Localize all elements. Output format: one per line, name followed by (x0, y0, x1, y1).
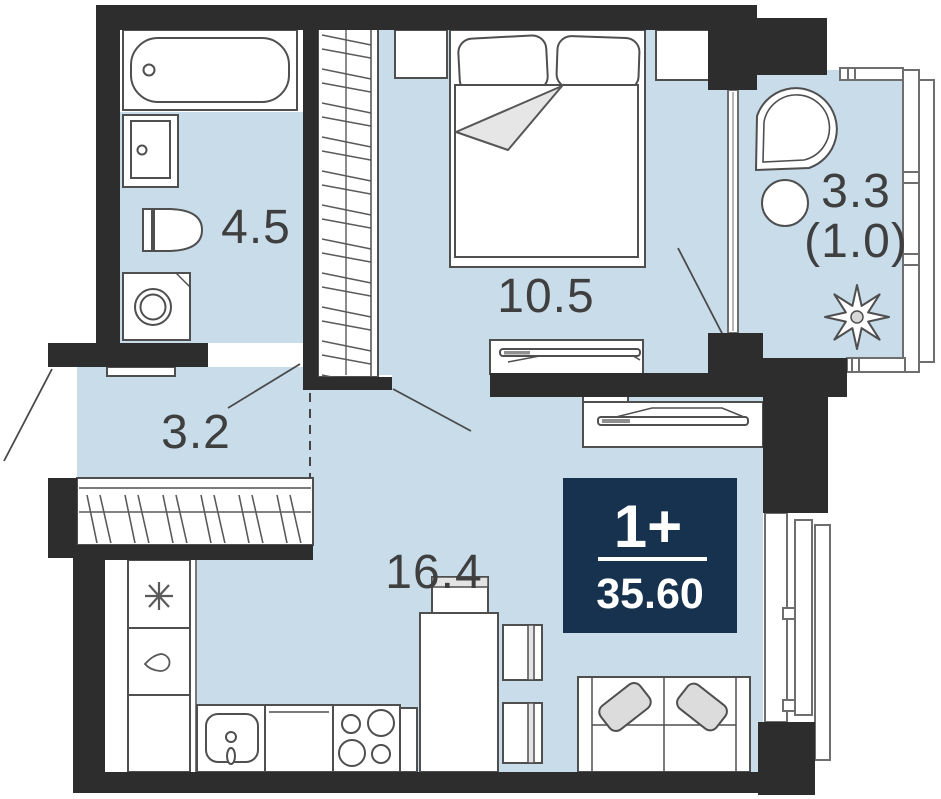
wardrobe-hallway (77, 478, 313, 545)
dining-table (420, 613, 498, 772)
balcony-outer-frame (919, 80, 934, 362)
kitchen-counter (265, 705, 333, 772)
balcony-area-label: 3.3 (821, 165, 891, 218)
entrance-threshold (107, 367, 175, 376)
pillow (556, 36, 640, 91)
washing-machine (123, 273, 190, 340)
balcony-coeff-label: (1.0) (804, 215, 908, 268)
kitchen-cabinet-narrow (400, 708, 417, 772)
badge-divider (598, 557, 707, 561)
chair (503, 703, 542, 763)
sofa (578, 677, 750, 772)
snowflake-icon (145, 582, 173, 610)
bed (450, 30, 645, 267)
bedside-table-left (395, 30, 447, 78)
kitchen-row (197, 705, 417, 772)
unit-type-label: 1+ (614, 493, 682, 560)
chair (503, 625, 542, 680)
living-kitchen-area-label: 16.4 (385, 546, 482, 599)
balcony-chair (756, 88, 837, 170)
unit-badge: 1+ 35.60 (563, 478, 737, 633)
unit-area-label: 35.60 (596, 570, 704, 618)
window-sill (815, 525, 830, 760)
tv-detail (504, 351, 530, 355)
toilet (143, 209, 202, 251)
living-window-frame (795, 520, 812, 715)
bedroom-area-label: 10.5 (497, 270, 594, 323)
hallway-area-label: 3.2 (161, 406, 231, 459)
bedside-table-right (656, 30, 710, 80)
window-mullion (783, 700, 795, 711)
plant (825, 285, 889, 349)
floor-plan-page: 4.5 3.2 10.5 16.4 3.3 (1.0) 1+ 35.60 (0, 0, 941, 799)
kitchen-column (128, 560, 196, 772)
stove (333, 705, 400, 772)
tv-stand-bedroom (490, 340, 643, 374)
window-mullion (783, 608, 795, 619)
window-mullion (903, 172, 919, 183)
floor-plan: 4.5 3.2 10.5 16.4 3.3 (1.0) 1+ 35.60 (0, 0, 941, 799)
kitchen-sink (197, 705, 265, 772)
wardrobe-bedroom (318, 28, 378, 377)
kitchen-cabinet (128, 628, 190, 695)
glass-partition (728, 90, 738, 333)
bathtub (123, 30, 297, 110)
kitchen-cabinet (128, 695, 190, 772)
washbasin (123, 115, 178, 187)
window-mullion (852, 358, 859, 372)
balcony-table (762, 180, 808, 226)
bathroom-area-label: 4.5 (221, 201, 291, 254)
tv-detail (602, 419, 630, 423)
window-mullion (848, 68, 855, 80)
